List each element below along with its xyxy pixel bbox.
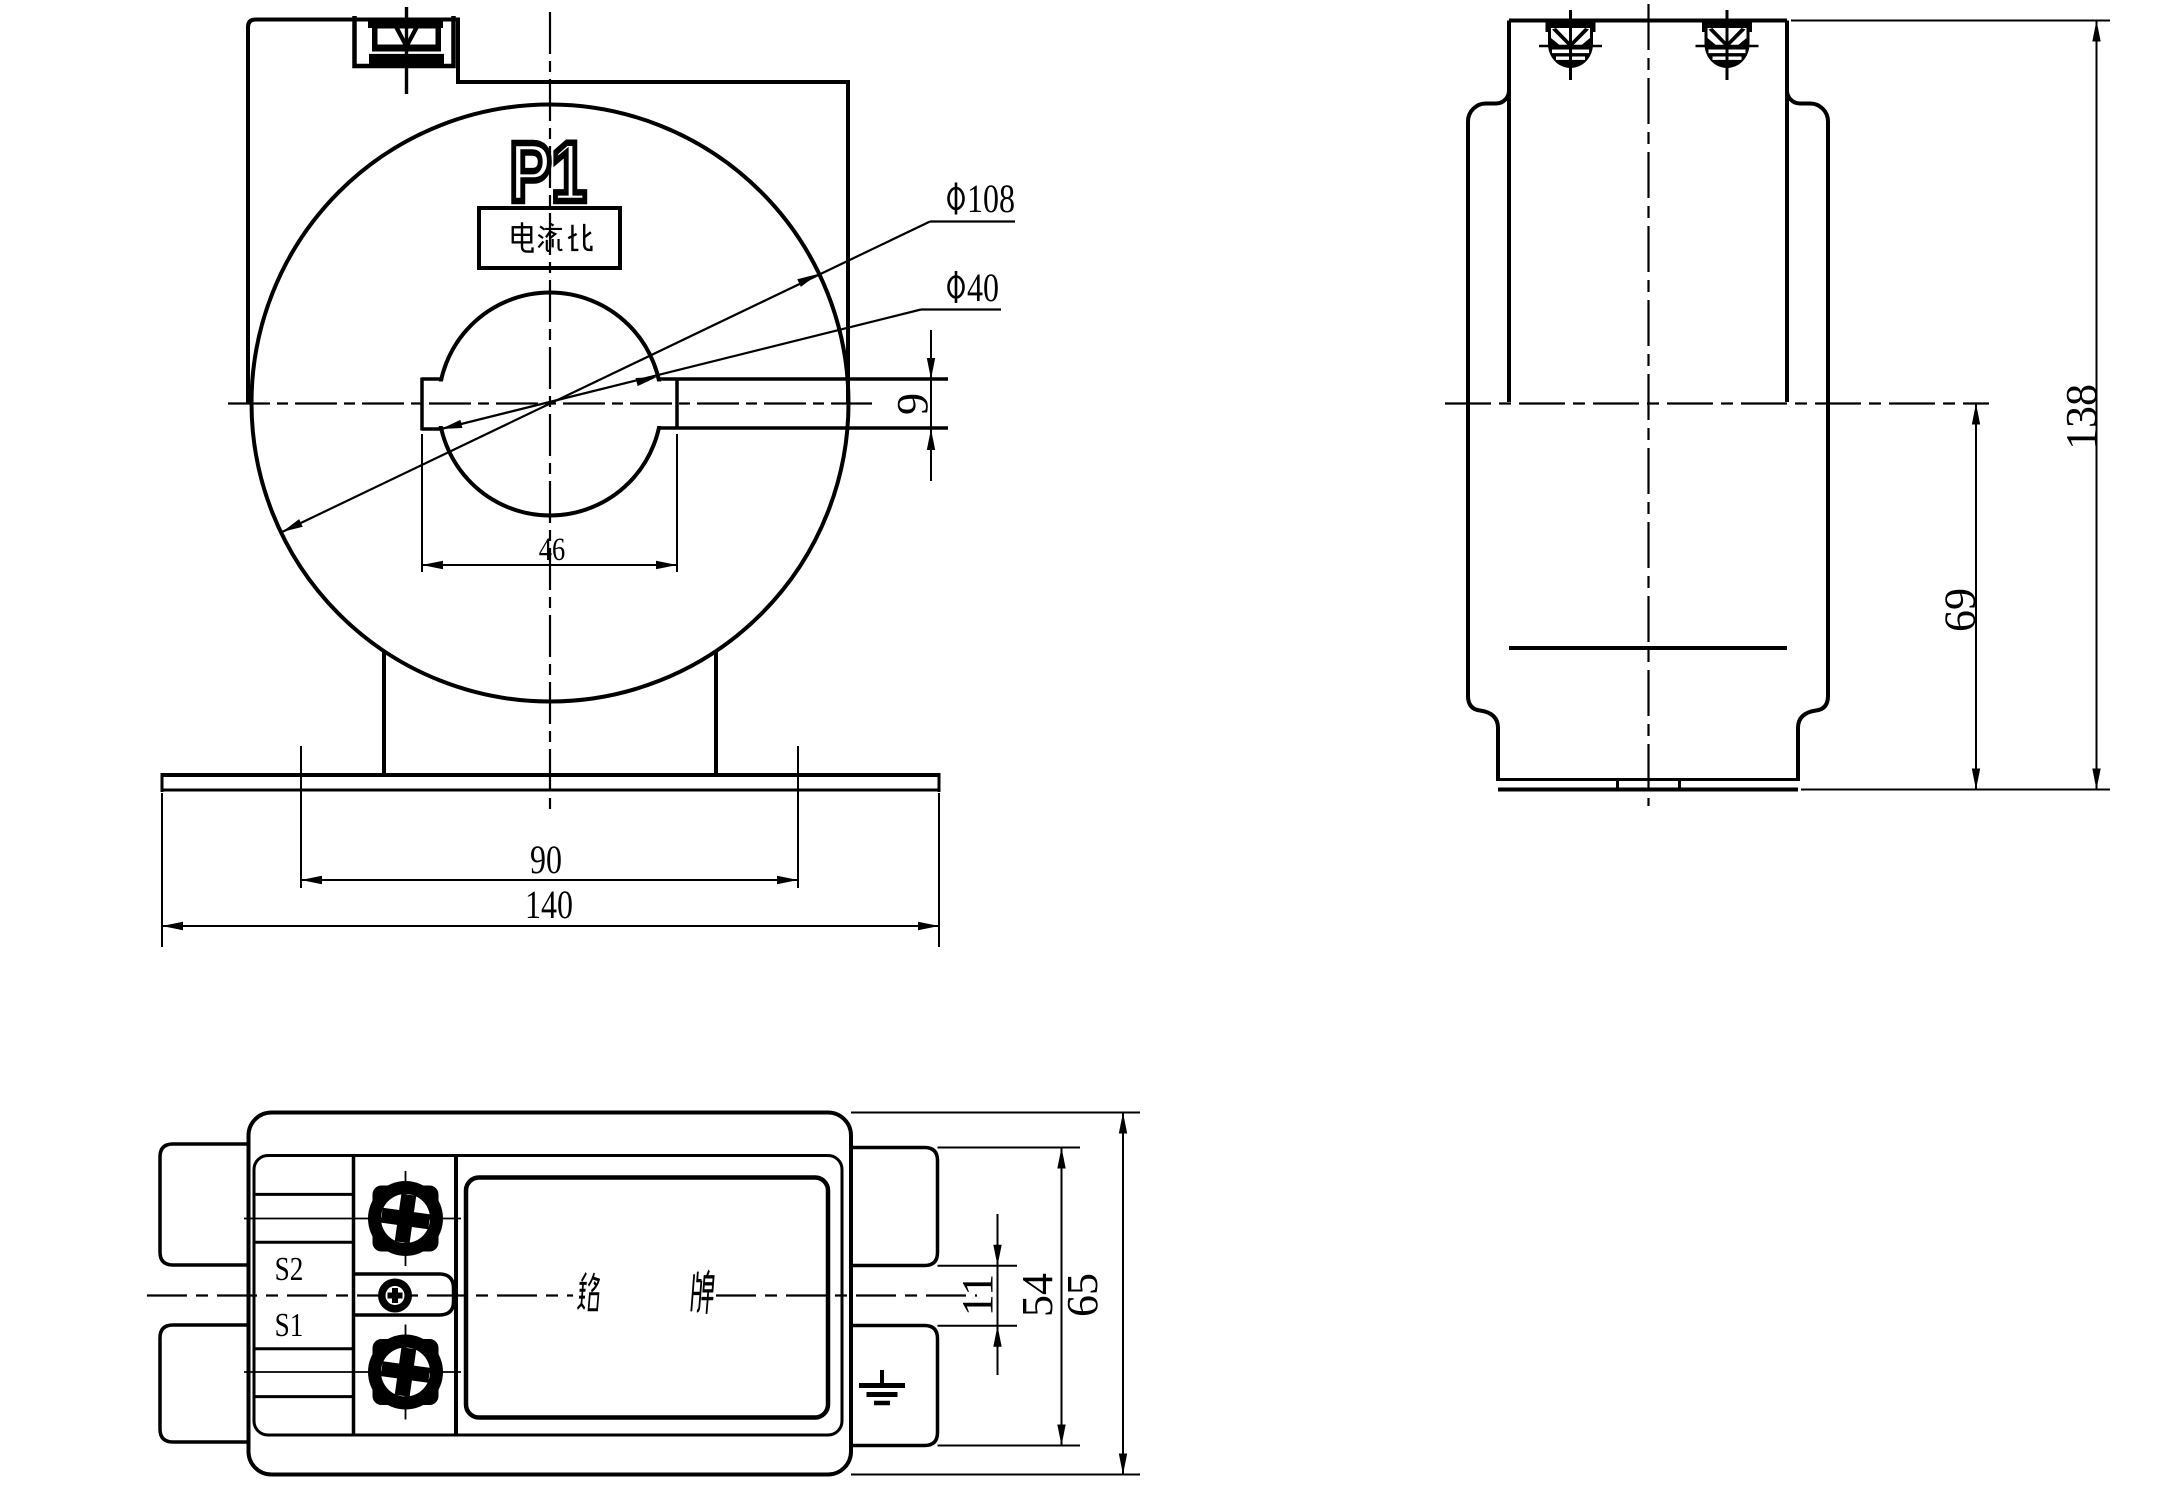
svg-text:9: 9 xyxy=(888,393,937,415)
svg-text:108: 108 xyxy=(967,177,1015,221)
svg-text:69: 69 xyxy=(1936,588,1985,632)
svg-text:P1: P1 xyxy=(509,125,586,219)
svg-text:40: 40 xyxy=(967,266,999,310)
svg-text:54: 54 xyxy=(1013,1273,1062,1317)
svg-text:11: 11 xyxy=(953,1274,1002,1316)
svg-text:S2: S2 xyxy=(275,1250,304,1288)
svg-text:90: 90 xyxy=(530,838,562,882)
svg-text:46: 46 xyxy=(539,531,565,567)
svg-text:S1: S1 xyxy=(275,1306,304,1344)
svg-text:138: 138 xyxy=(2057,384,2106,450)
svg-text:140: 140 xyxy=(525,883,573,927)
svg-text:65: 65 xyxy=(1058,1273,1107,1317)
